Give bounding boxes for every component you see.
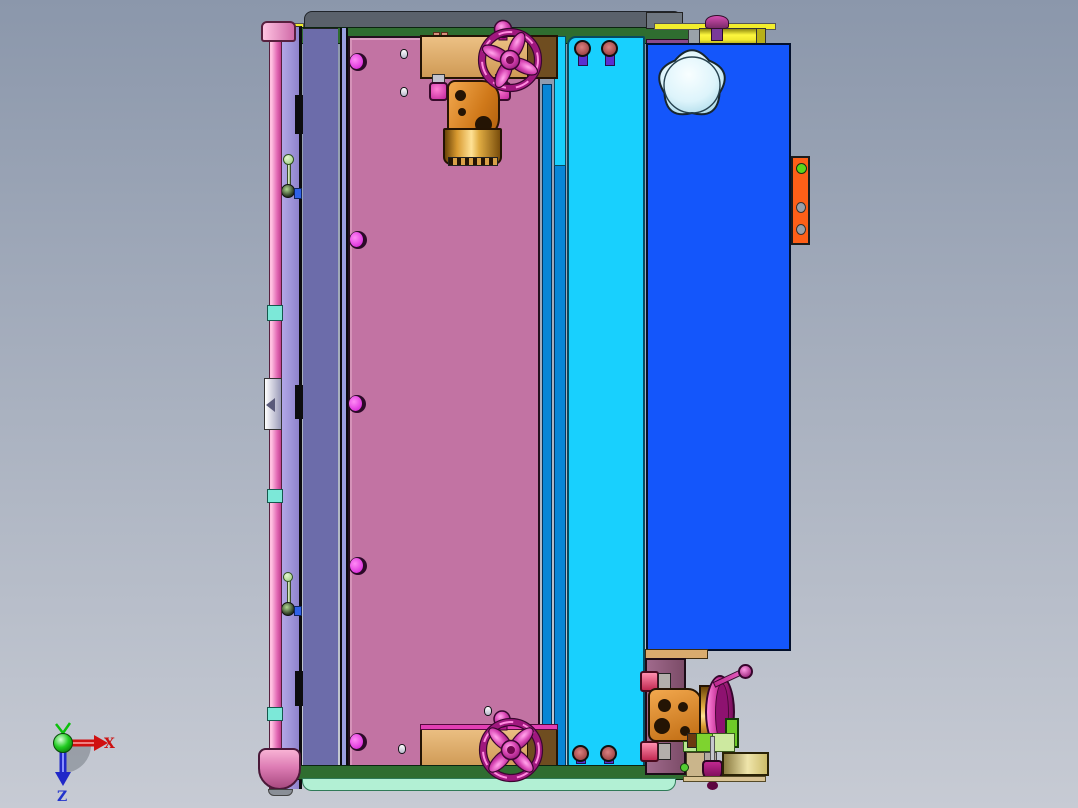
blue-support-strip[interactable] [542,84,552,766]
slate-clamp-plate[interactable] [303,28,338,767]
pilot-hole [398,744,406,754]
magenta-nut [429,82,448,101]
bore-hole [348,395,366,413]
tan-strip-br [683,776,766,782]
z-axis-label: Z [57,789,67,805]
pilot-hole [400,49,408,59]
lever-ball [738,664,753,679]
bracket-hole-green [796,163,807,174]
rail-bottom-cap[interactable] [258,748,301,790]
latch-ball[interactable] [283,154,294,165]
bore-hole [349,231,367,249]
coolant-fitting[interactable] [267,707,283,721]
black-clamp-chip [295,95,303,134]
blue-core-plate[interactable] [646,43,791,651]
coolant-fitting[interactable] [267,489,283,503]
black-clamp-chip [295,671,303,706]
handwheel-top[interactable] [474,14,546,96]
latch-knob[interactable] [281,602,295,616]
bore-hole [349,557,367,575]
periwinkle-strip [340,28,348,767]
screw-head [572,745,589,762]
bore-hole [349,733,367,751]
gray-hex-nut [658,743,671,760]
screw-head [574,40,591,57]
rail-foot [268,789,293,796]
sleeve-notch [266,398,275,412]
khaki-wedge-plate[interactable] [722,752,769,776]
magenta-screw-tip [707,781,718,790]
coolant-fitting[interactable] [267,305,283,321]
latch-knob[interactable] [281,184,295,198]
cyan-ejector-plate[interactable] [567,36,645,768]
valve-teeth [448,157,498,166]
triad-origin-ball [54,734,73,753]
pilot-hole [400,87,408,97]
blue-support-strip[interactable] [554,84,566,766]
bracket-hole [796,224,806,235]
pink-screw [640,741,659,762]
pale-green-block [712,733,735,752]
handwheel-bottom[interactable] [475,708,547,790]
black-clamp-chip [295,385,303,419]
cad-viewport[interactable]: X Z [0,0,1078,808]
screw-head [600,745,617,762]
green-dot [680,763,689,772]
screw-head [601,40,618,57]
latch-ball[interactable] [283,572,293,582]
white-star-knob[interactable] [650,40,734,124]
rail-top-cap[interactable] [261,21,296,42]
x-axis-label: X [104,736,115,752]
latch-clip [294,606,302,616]
latch-clip [294,188,302,199]
bracket-hole [796,202,806,213]
orientation-triad[interactable]: X Z [28,698,138,806]
magenta-cap [705,15,729,29]
bore-hole [349,53,367,71]
